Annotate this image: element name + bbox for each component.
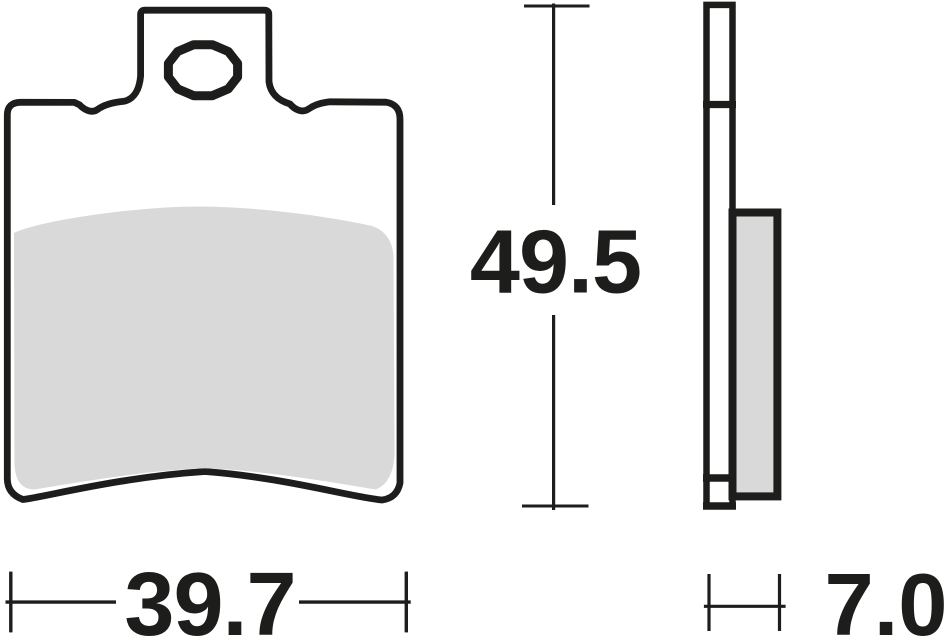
svg-text:39.7: 39.7	[124, 555, 295, 636]
svg-text:7.0: 7.0	[824, 555, 945, 636]
svg-text:49.5: 49.5	[470, 212, 641, 312]
